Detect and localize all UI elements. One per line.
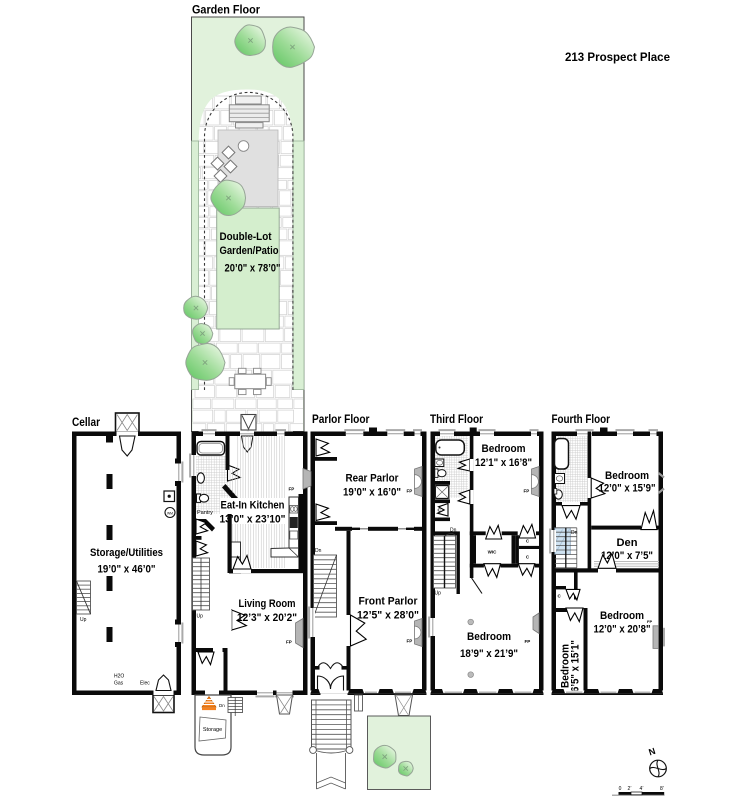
svg-text:FP: FP (407, 489, 413, 494)
svg-text:Eat-In Kitchen: Eat-In Kitchen (221, 500, 285, 512)
svg-text:8’: 8’ (660, 786, 664, 792)
svg-text:FP: FP (647, 619, 652, 624)
svg-text:213 Prospect Place: 213 Prospect Place (565, 50, 670, 64)
svg-text:Dn: Dn (450, 528, 457, 534)
svg-text:19’0" x 16’0": 19’0" x 16’0" (343, 487, 401, 499)
svg-text:0: 0 (619, 786, 622, 792)
svg-text:WM: WM (167, 511, 173, 515)
svg-text:FP: FP (286, 640, 292, 645)
svg-text:Bedroom: Bedroom (605, 470, 649, 482)
svg-text:Storage: Storage (203, 727, 222, 733)
svg-text:Living Room: Living Room (239, 598, 296, 610)
svg-text:Up: Up (435, 591, 442, 597)
svg-text:Den: Den (617, 537, 638, 549)
svg-text:Storage/Utilities: Storage/Utilities (90, 547, 163, 559)
svg-text:FP: FP (289, 487, 295, 492)
svg-text:FP: FP (407, 639, 413, 644)
svg-text:Double-Lot: Double-Lot (220, 231, 272, 243)
svg-text:H2O: H2O (114, 674, 124, 680)
svg-text:Up: Up (80, 617, 87, 623)
svg-text:Dn: Dn (219, 703, 225, 708)
svg-text:Garden/Patio: Garden/Patio (220, 245, 279, 257)
svg-text:Pantry: Pantry (197, 510, 213, 516)
svg-text:Garden Floor: Garden Floor (192, 3, 260, 17)
svg-text:Third Floor: Third Floor (430, 412, 483, 426)
svg-text:Rear Parlor: Rear Parlor (346, 473, 400, 485)
svg-text:12’0" x 15’9": 12’0" x 15’9" (599, 483, 656, 495)
svg-text:FP: FP (525, 639, 531, 644)
svg-text:FP: FP (524, 489, 530, 494)
svg-text:Dn: Dn (571, 530, 578, 536)
svg-text:6’5" x 15’1": 6’5" x 15’1" (570, 640, 582, 692)
svg-text:12’5" x 28’0": 12’5" x 28’0" (357, 610, 419, 622)
svg-text:Parlor Floor: Parlor Floor (312, 412, 370, 426)
svg-text:Elec: Elec (140, 681, 150, 687)
svg-text:Fourth Floor: Fourth Floor (552, 412, 611, 426)
svg-text:Bedroom: Bedroom (467, 631, 511, 643)
svg-text:Front Parlor: Front Parlor (359, 596, 419, 608)
svg-text:Up: Up (197, 614, 204, 620)
svg-text:19’0" x 46’0": 19’0" x 46’0" (98, 564, 156, 576)
svg-text:WIC: WIC (488, 550, 497, 555)
svg-text:18’9" x 21’9": 18’9" x 21’9" (460, 648, 518, 660)
svg-text:Dn: Dn (315, 548, 322, 554)
svg-text:12’0" x 20’8": 12’0" x 20’8" (594, 624, 651, 636)
svg-text:Bedroom: Bedroom (482, 443, 526, 455)
svg-text:12’1" x 16’8": 12’1" x 16’8" (475, 457, 532, 469)
svg-text:Gas: Gas (114, 681, 124, 687)
svg-text:12’3" x 20’2": 12’3" x 20’2" (237, 612, 297, 624)
svg-text:Cellar: Cellar (72, 415, 100, 429)
svg-text:20’0" x 78’0": 20’0" x 78’0" (225, 263, 281, 275)
svg-text:Bedroom: Bedroom (600, 610, 644, 622)
svg-text:4’: 4’ (640, 786, 644, 792)
svg-text:2’: 2’ (628, 786, 632, 792)
